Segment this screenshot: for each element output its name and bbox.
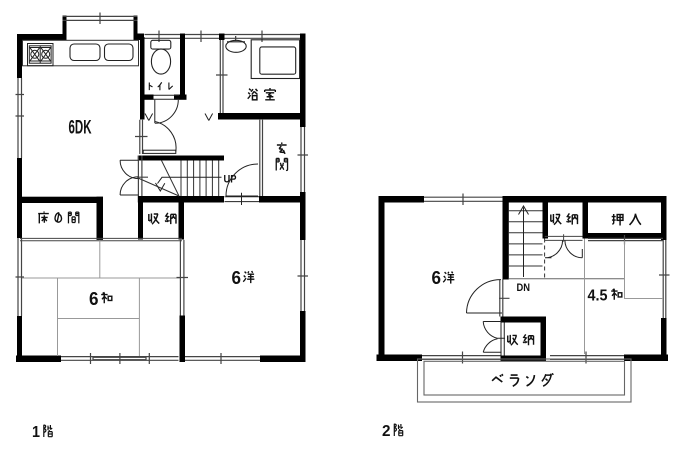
svg-text:4.5: 4.5 (588, 288, 608, 305)
svg-text:6: 6 (432, 268, 442, 288)
svg-text:DN: DN (517, 282, 531, 294)
svg-text:6: 6 (232, 268, 242, 288)
svg-text:6: 6 (89, 289, 99, 309)
svg-text:UP: UP (224, 173, 237, 185)
svg-text:6DK: 6DK (69, 118, 92, 139)
svg-text:2: 2 (382, 423, 391, 440)
svg-text:1: 1 (32, 424, 40, 441)
